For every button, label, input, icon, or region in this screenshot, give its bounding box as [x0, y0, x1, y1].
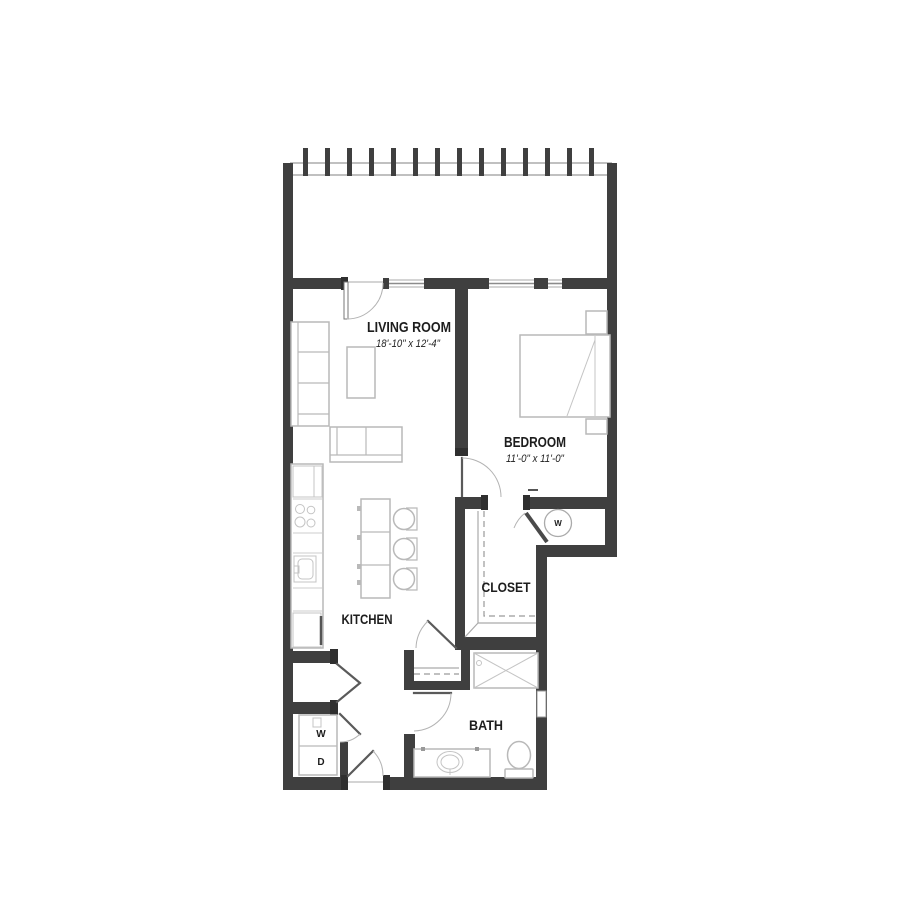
south-wall-left: [283, 777, 348, 790]
stub-a-jamb: [330, 649, 338, 664]
balcony-door: [344, 282, 383, 319]
loveseat: [330, 427, 402, 462]
shower: [474, 653, 538, 688]
toilet: [505, 742, 533, 779]
linen-closet-door: [416, 621, 456, 648]
linen-south-wall: [404, 681, 470, 690]
closet-label: CLOSET: [482, 580, 532, 595]
entry-door: [348, 751, 383, 782]
closet-opening-jamb-left: [481, 495, 488, 510]
balcony-wall-left: [283, 278, 345, 289]
entry-jamb-left: [341, 775, 348, 790]
kitchen-island: [357, 499, 390, 598]
floor-plan: LIVING ROOM 18'-10" x 12'-4" BEDROOM 11'…: [0, 0, 900, 900]
bedroom-label: BEDROOM: [504, 434, 566, 451]
bedroom-door: [462, 458, 501, 497]
balcony-railing: [290, 148, 612, 176]
balcony-door-leaf: [344, 282, 348, 319]
bedroom-south-wall-b: [523, 497, 617, 509]
water-heater-nook: W: [545, 510, 572, 537]
dryer-label: D: [317, 757, 324, 768]
coat-closet-bifold-doors: [337, 664, 360, 702]
hall-stub-a: [288, 651, 337, 663]
kitchen: KITCHEN: [291, 464, 417, 648]
balcony-wall-mid: [430, 278, 483, 289]
bedroom-dims: 11'-0" x 11'-0": [506, 453, 565, 465]
closet-opening-jamb-right: [523, 495, 530, 510]
walls: [283, 163, 617, 790]
living-room-dims: 18'-10" x 12'-4": [376, 338, 441, 350]
water-heater-door-leaf: [526, 513, 547, 542]
floor-plan-canvas: LIVING ROOM 18'-10" x 12'-4" BEDROOM 11'…: [0, 0, 900, 900]
living-room-window: [383, 278, 430, 289]
laundry-closet-door: [340, 714, 360, 742]
water-heater-label: W: [554, 519, 562, 528]
linen-closet-shelf: [414, 668, 459, 674]
closet-rod: [484, 511, 536, 616]
balcony-wall-right: [562, 278, 607, 289]
entry-jamb-right: [383, 775, 390, 790]
hall-stub-b: [288, 702, 337, 714]
south-wall-right: [383, 777, 547, 790]
bath: BATH: [414, 653, 546, 778]
closet-west-wall: [455, 509, 465, 645]
bed: [520, 335, 610, 417]
washer-label: W: [316, 729, 326, 740]
coffee-table: [347, 347, 375, 398]
window-post: [540, 278, 548, 289]
living-room: LIVING ROOM 18'-10" x 12'-4": [291, 319, 451, 462]
closet-shelf-edge: [478, 511, 536, 623]
wall-niche: [537, 691, 546, 717]
laundry-east-wall: [340, 742, 348, 777]
nook-bottom-wall: [536, 545, 617, 557]
bedroom-window-large: [483, 278, 540, 289]
vanity: [414, 747, 490, 777]
nightstand-south: [586, 419, 607, 434]
living-bedroom-divider: [455, 288, 468, 455]
sofa: [291, 322, 329, 426]
living-room-label: LIVING ROOM: [367, 319, 451, 336]
linen-east-wall: [461, 650, 470, 690]
railing-posts: [303, 148, 594, 176]
bedroom-window-small: [548, 280, 562, 287]
nightstand-north: [586, 311, 607, 334]
bath-label: BATH: [469, 718, 503, 733]
walk-in-closet: CLOSET: [465, 511, 536, 637]
closet-south-wall: [455, 637, 546, 650]
water-heater-door: [514, 513, 547, 542]
bedroom: BEDROOM 11'-0" x 11'-0": [504, 311, 610, 490]
kitchen-label: KITCHEN: [342, 612, 393, 627]
bar-stools: [394, 508, 418, 590]
bath-door: [414, 693, 451, 731]
laundry-closet: W D: [299, 715, 337, 775]
bedroom-door-jamb: [455, 448, 468, 456]
closet-shelf-miter: [465, 623, 478, 637]
